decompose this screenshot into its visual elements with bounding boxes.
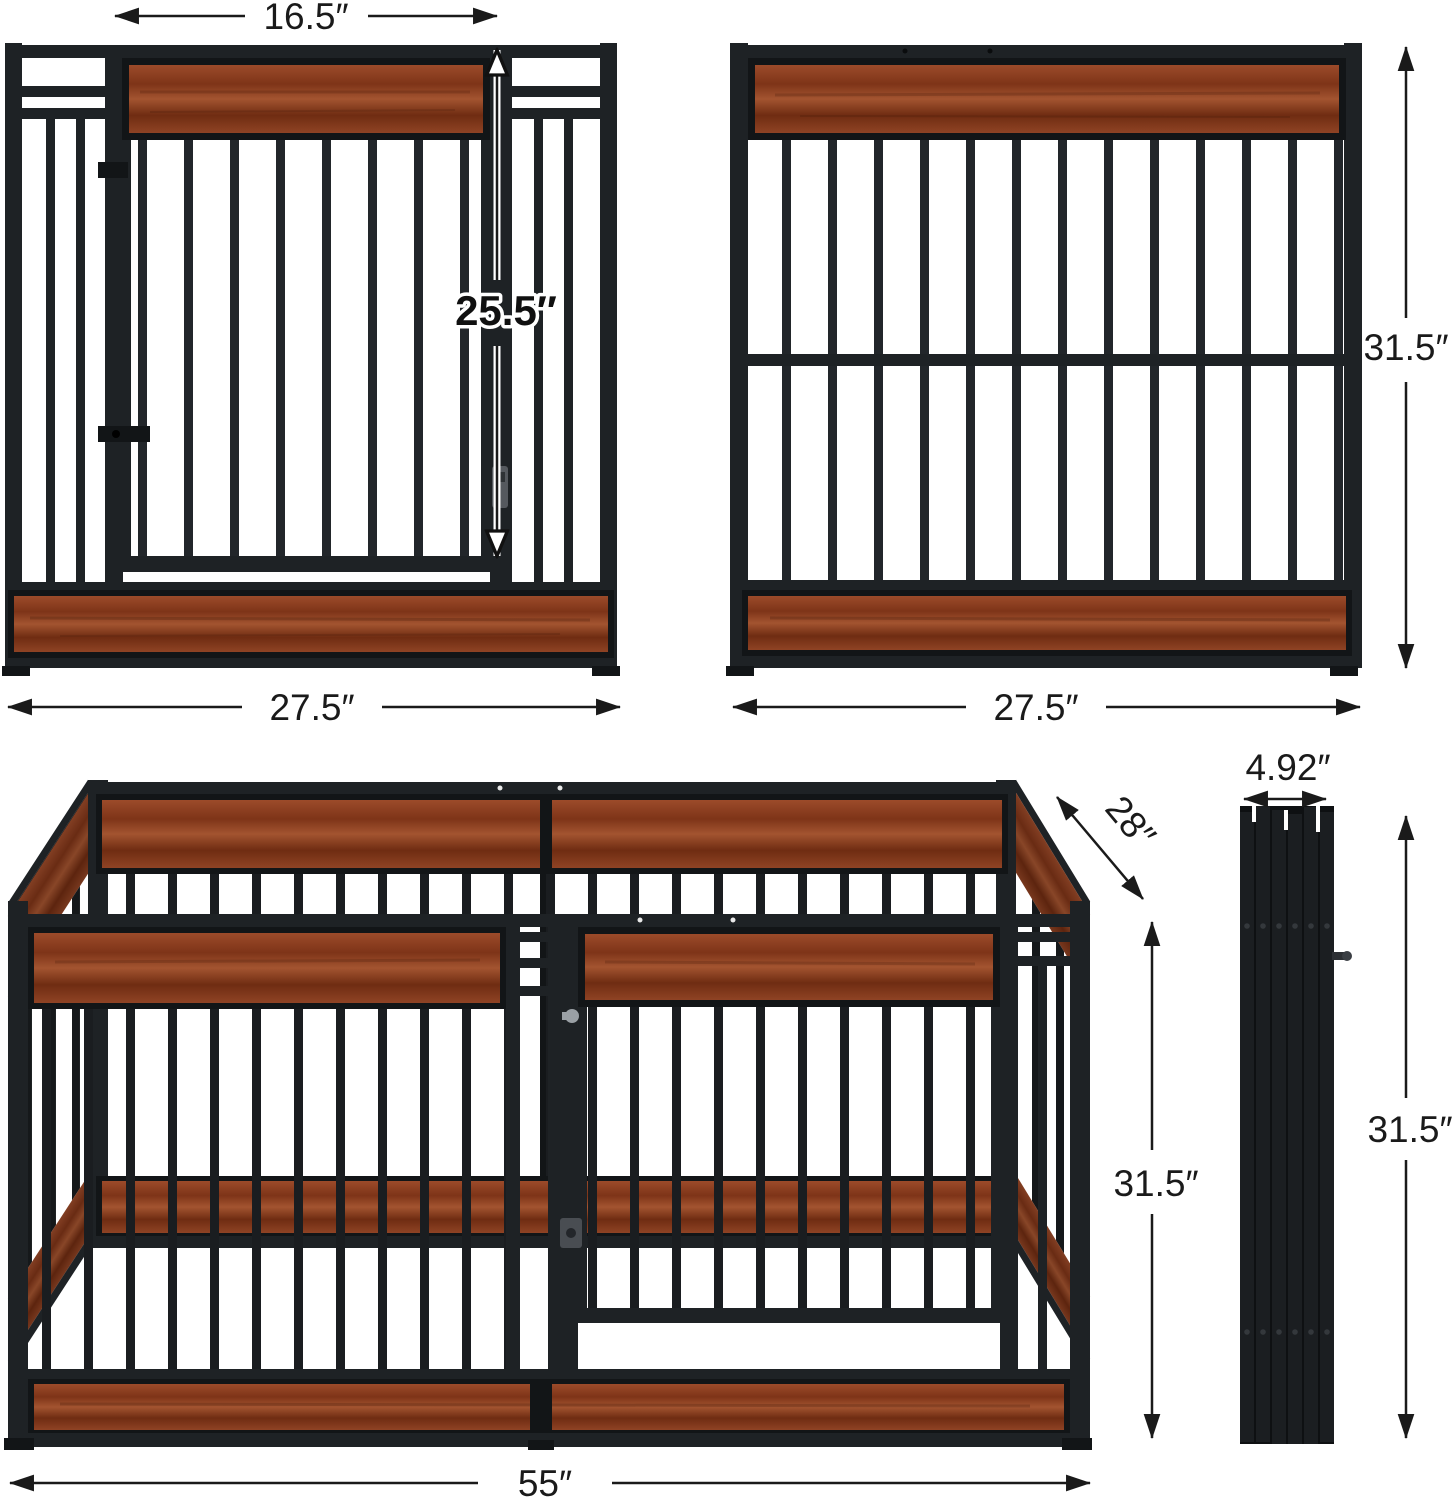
folded-latch-knob (1342, 951, 1352, 961)
view-assembled-pen (4, 780, 1092, 1450)
dim-panel-height-label: 31.5″ (1363, 327, 1448, 368)
foot (726, 666, 754, 676)
folded-slat (1320, 812, 1334, 1442)
bottom-wood-panel (742, 590, 1352, 656)
folded-slat (1288, 814, 1302, 1444)
foot (1330, 666, 1358, 676)
diagram-stage: 16.5″ 25.5″ 27.5″ 27.5″ 31.5″ 28″ (0, 0, 1454, 1500)
dim-panel-height: 31.5″ (1363, 47, 1448, 668)
folded-slat (1304, 807, 1318, 1444)
dim-folded-width-label: 4.92″ (1245, 747, 1330, 788)
dim-right-panel-width: 27.5″ (733, 687, 1360, 728)
view-plain-panel-front (726, 43, 1362, 676)
door-hinge-bottom (98, 426, 150, 442)
pen-front-wall (4, 901, 1092, 1450)
ladder-section-left (22, 86, 105, 584)
pen-front-right-panel-with-door (560, 927, 1070, 1371)
bottom-wood-panel (8, 590, 614, 658)
door-hinge-top (98, 162, 128, 178)
pen-front-bottom (4, 1369, 1092, 1450)
dim-pen-height-label: 31.5″ (1113, 1163, 1198, 1204)
door-bottom-rail (122, 556, 490, 572)
dim-folded-height: 31.5″ (1367, 816, 1452, 1438)
dim-door-height-label: 25.5″ (455, 287, 557, 334)
dim-pen-depth-label: 28″ (1097, 788, 1163, 856)
foot (2, 666, 30, 676)
foot (4, 1438, 34, 1450)
foot (592, 666, 620, 676)
mid-rail (748, 354, 1346, 366)
dim-pen-width: 55″ (10, 1463, 1090, 1500)
dim-pen-width-label: 55″ (518, 1463, 572, 1500)
folded-slat (1272, 810, 1286, 1444)
dim-pen-height: 31.5″ (1113, 922, 1198, 1438)
view-door-panel-front (2, 43, 620, 676)
foot (528, 1440, 554, 1450)
panel-bars (748, 140, 1346, 590)
hinge-pin (112, 430, 120, 438)
door (98, 56, 512, 584)
foot (1062, 1438, 1092, 1450)
folded-slat (1256, 806, 1270, 1442)
dim-folded-width: 4.92″ (1244, 747, 1331, 799)
dim-right-panel-width-label: 27.5″ (993, 687, 1078, 728)
ladder-section-right (512, 86, 600, 584)
door-wood-panel (129, 65, 483, 133)
product-dimension-diagram: 16.5″ 25.5″ 27.5″ 27.5″ 31.5″ 28″ (0, 0, 1454, 1500)
pen-front-left-panel (28, 927, 506, 1369)
pen-door-bottom-rail (578, 1308, 1000, 1323)
dim-left-panel-width-label: 27.5″ (269, 687, 354, 728)
door-bars (122, 140, 490, 572)
dim-folded-height-label: 31.5″ (1367, 1109, 1452, 1150)
folded-slat (1240, 812, 1254, 1442)
pen-door-wood-panel (585, 934, 993, 1000)
top-wood-panel (748, 58, 1346, 140)
dim-door-width: 16.5″ (115, 0, 497, 37)
dim-door-width-label: 16.5″ (263, 0, 348, 37)
view-folded-stack (1240, 806, 1352, 1444)
dim-left-panel-width: 27.5″ (8, 687, 620, 728)
pen-door-latch-knob (565, 1009, 579, 1023)
pen-door-bars (578, 1007, 1000, 1323)
